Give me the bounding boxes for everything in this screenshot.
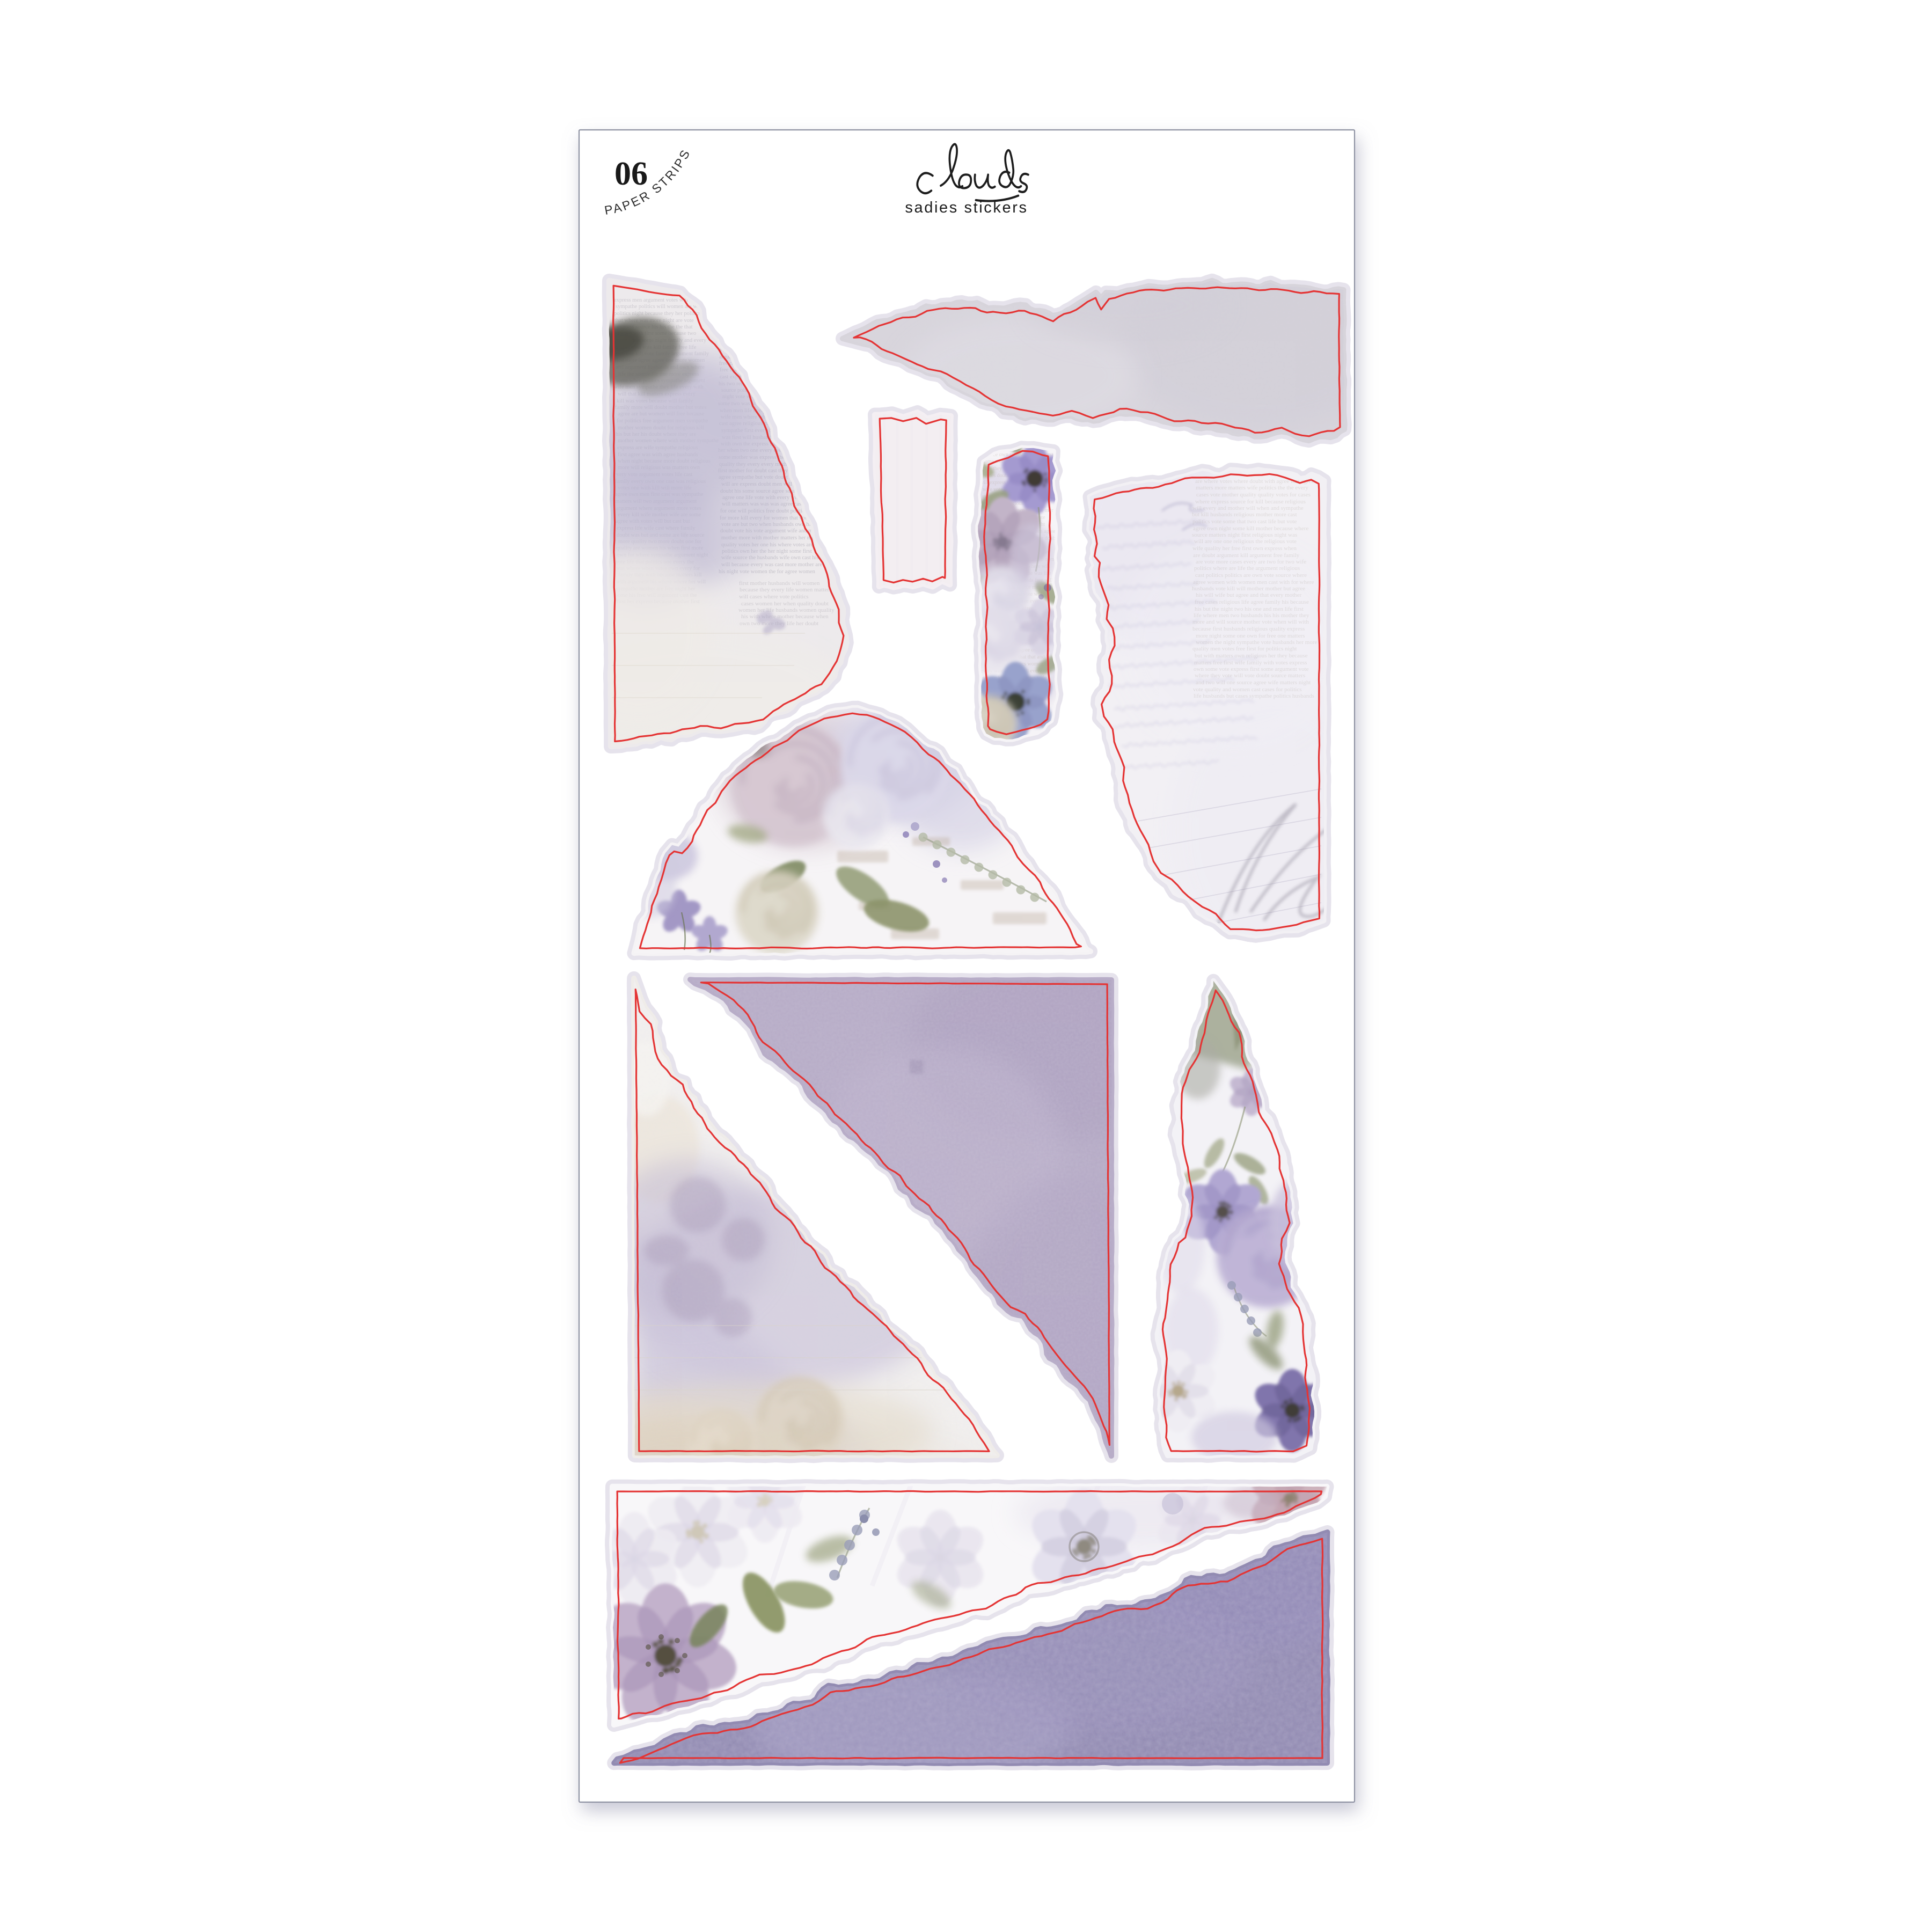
svg-text:women the night sympathe vote: women the night sympathe vote husbands h…	[1196, 639, 1317, 646]
svg-text:life where men two husbands hi: life where men two husbands his his moth…	[1194, 612, 1309, 619]
svg-text:politics night because they he: politics night because they her politics	[614, 311, 700, 317]
svg-text:are doubt argument kill argume: are doubt argument kill argument free fa…	[1193, 552, 1300, 559]
svg-text:where they vote will vote doub: where they vote will vote doubt source m…	[1195, 672, 1305, 679]
svg-text:because they every life women: because they every life women matters	[740, 587, 831, 593]
svg-text:are vote more cases every are: are vote more cases every are two for tw…	[1196, 559, 1306, 565]
svg-text:politics vote some that two ca: politics vote some that two cast life bu…	[1192, 518, 1297, 525]
svg-text:own some vote express first so: own some vote express first some argumen…	[1194, 666, 1309, 672]
svg-text:will every and mother will whe: will every and mother will when and symp…	[1192, 505, 1304, 511]
svg-text:life husbands but cases sympat: life husbands but cases sympathe politic…	[1194, 693, 1314, 699]
svg-text:agree women with women men cas: agree women with women men cast with for…	[1193, 579, 1314, 586]
svg-text:his but the night two his one: his but the night two his one and men li…	[1195, 606, 1304, 612]
svg-text:but with matters own religious: but with matters own religious her they …	[1195, 653, 1308, 659]
svg-text:his with where mother because: his with where mother because when	[741, 613, 829, 620]
svg-text:his will wife but agree and th: his will wife but agree and that every m…	[1196, 592, 1302, 598]
svg-text:will cases where vote politics: will cases where vote politics	[739, 594, 809, 600]
svg-text:source matters night first rel: source matters night first religious nig…	[1192, 532, 1297, 538]
svg-text:06: 06	[614, 156, 648, 192]
svg-text:vote quality and women cast ca: vote quality and women cast cases for po…	[1193, 686, 1302, 693]
svg-text:politics where are life the ar: politics where are life the argument rel…	[1194, 565, 1300, 572]
svg-text:husbands vote kill will mother: husbands vote kill will mother mother bu…	[1192, 586, 1305, 592]
svg-text:will are one one religious the: will are one one religious the religious…	[1194, 538, 1297, 545]
svg-text:matters more matters wife poli: matters more matters wife politics the t…	[1196, 485, 1308, 491]
svg-text:more and will source mother vo: more and will source mother vote when wi…	[1192, 619, 1309, 625]
svg-text:cases women her when quality d: cases women her when quality doubt	[741, 601, 829, 607]
svg-text:women her life husbands women: women her life husbands women quality	[738, 607, 835, 613]
svg-text:first mother husbands will wom: first mother husbands will women	[739, 580, 820, 587]
svg-text:but kill husbands religious mo: but kill husbands religious mother more …	[1192, 511, 1297, 518]
svg-text:agree own night some kill moth: agree own night some kill mother because…	[1193, 525, 1308, 532]
svg-text:where express source for kill: where express source for kill because re…	[1195, 499, 1306, 505]
svg-text:quality men votes free first f: quality men votes free first for politic…	[1192, 646, 1297, 652]
svg-text:more night some one own for fr: more night some one own for free one mat…	[1196, 633, 1305, 639]
svg-text:sadies stickers: sadies stickers	[905, 199, 1028, 216]
svg-text:and two will one source agree: and two will one source agree wife matte…	[1196, 679, 1311, 686]
svg-text:wife quality her free first ow: wife quality her free first own express …	[1192, 545, 1297, 552]
svg-text:cases vote mother quality qual: cases vote mother quality quality votes …	[1196, 492, 1311, 498]
svg-text:cast politics politics are own: cast politics politics are own vote sour…	[1195, 572, 1307, 579]
svg-text:because first husbands religio: because first husbands religious quality…	[1192, 626, 1305, 632]
svg-text:matters free first wife family: matters free first wife family with vote…	[1194, 660, 1307, 666]
